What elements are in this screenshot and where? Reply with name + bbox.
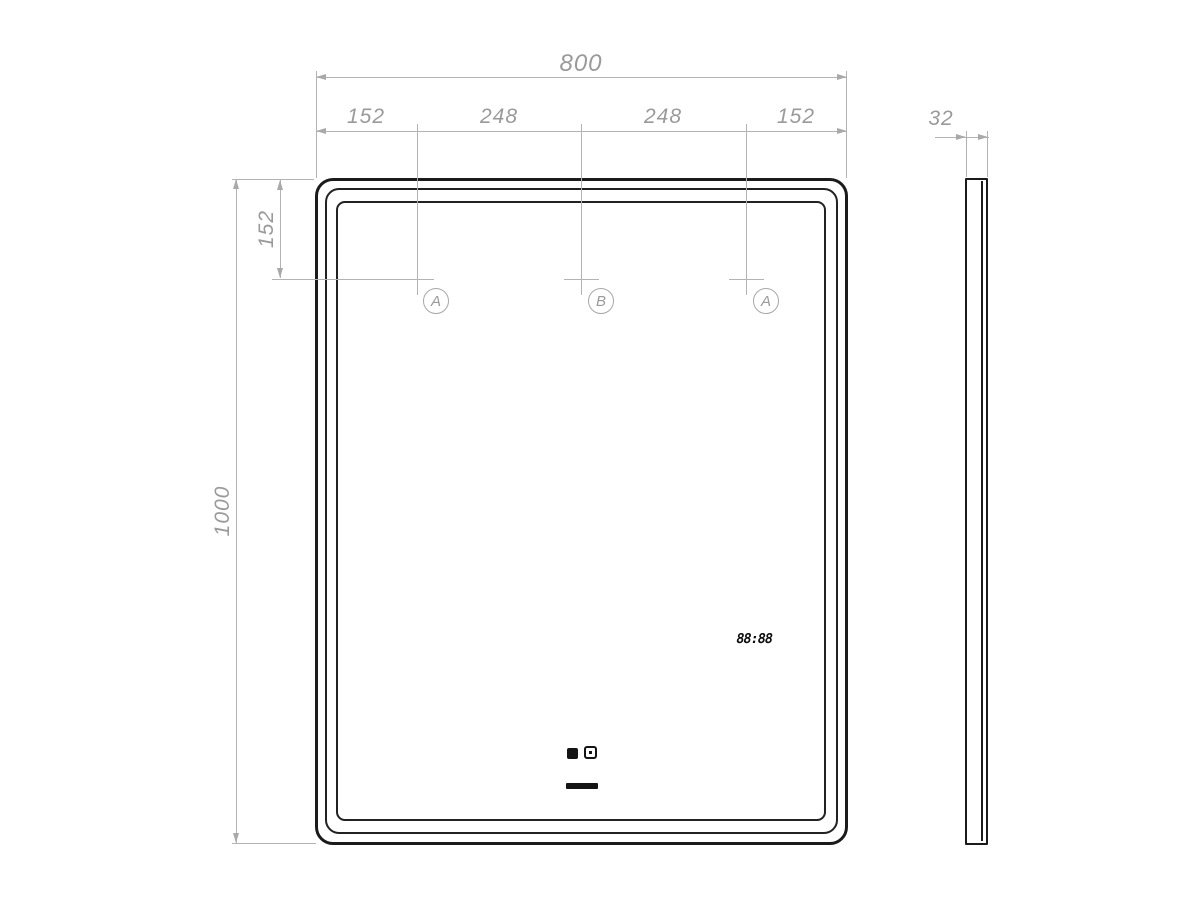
mount-cross-line [272, 279, 434, 280]
extension-line [846, 71, 847, 178]
dim-arrow-icon [277, 180, 283, 190]
dim-top-offset-label: 152 [255, 189, 275, 269]
extension-line [232, 179, 314, 180]
clock-set-sensor-icon [567, 748, 578, 759]
dim-width-total-label: 800 [541, 50, 621, 78]
dim-arrow-icon [233, 179, 239, 189]
mount-cross-line [564, 279, 599, 280]
mount-axis-line [746, 124, 747, 295]
dim-segment-label: 152 [756, 105, 836, 129]
power-sensor-dot-icon [589, 751, 592, 754]
dim-arrow-icon [316, 74, 326, 80]
dim-line [236, 180, 237, 843]
mount-label: B [596, 293, 606, 310]
dim-segment-label: 152 [326, 105, 406, 129]
extension-line [232, 843, 316, 844]
dim-arrow-icon [316, 128, 326, 134]
mount-label: A [761, 293, 771, 310]
touch-slider-bar [566, 783, 598, 789]
dim-segment-label: 248 [459, 105, 539, 129]
dim-line [280, 180, 281, 278]
mount-axis-line [417, 124, 418, 295]
side-profile-outline [965, 178, 988, 845]
extension-line [987, 131, 988, 177]
dim-arrow-icon [956, 134, 966, 140]
drawing-canvas: 88:88 800 152 248 248 152 [0, 0, 1200, 900]
power-sensor-icon [584, 746, 597, 759]
dim-side-thickness-label: 32 [901, 107, 981, 131]
extension-line [966, 131, 967, 177]
dim-height-total-label: 1000 [211, 471, 231, 551]
clock-display: 88:88 [731, 630, 776, 648]
dim-arrow-icon [233, 833, 239, 843]
mount-label-circle: B [588, 288, 614, 314]
mount-cross-line [729, 279, 764, 280]
dim-arrow-icon [837, 128, 847, 134]
mount-label: A [431, 293, 441, 310]
dim-arrow-icon [277, 268, 283, 278]
mount-label-circle: A [753, 288, 779, 314]
mount-label-circle: A [423, 288, 449, 314]
mount-axis-line [581, 124, 582, 295]
side-profile-inner-line [981, 181, 983, 841]
dim-segment-label: 248 [623, 105, 703, 129]
extension-line [316, 71, 317, 178]
